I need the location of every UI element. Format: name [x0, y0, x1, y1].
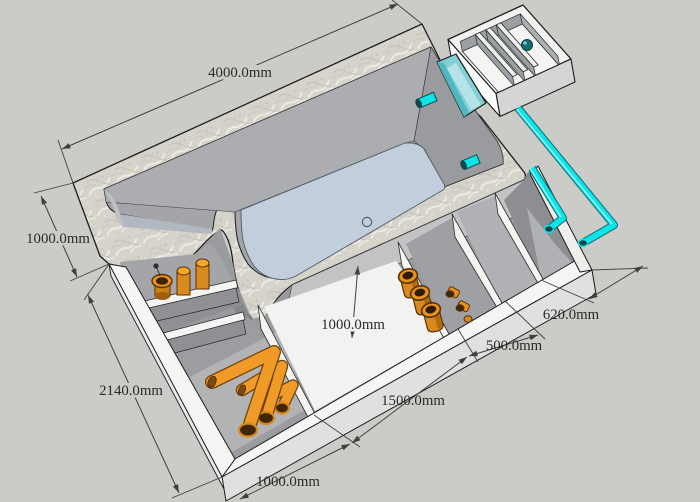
svg-text:1000.0mm: 1000.0mm	[26, 231, 90, 247]
svg-text:1000.0mm: 1000.0mm	[321, 317, 385, 333]
svg-text:1500.0mm: 1500.0mm	[381, 393, 445, 409]
svg-text:2140.0mm: 2140.0mm	[99, 383, 163, 399]
svg-text:500.0mm: 500.0mm	[486, 338, 543, 354]
svg-text:1000.0mm: 1000.0mm	[256, 474, 320, 490]
svg-text:4000.0mm: 4000.0mm	[208, 65, 272, 81]
svg-text:620.0mm: 620.0mm	[543, 307, 600, 323]
